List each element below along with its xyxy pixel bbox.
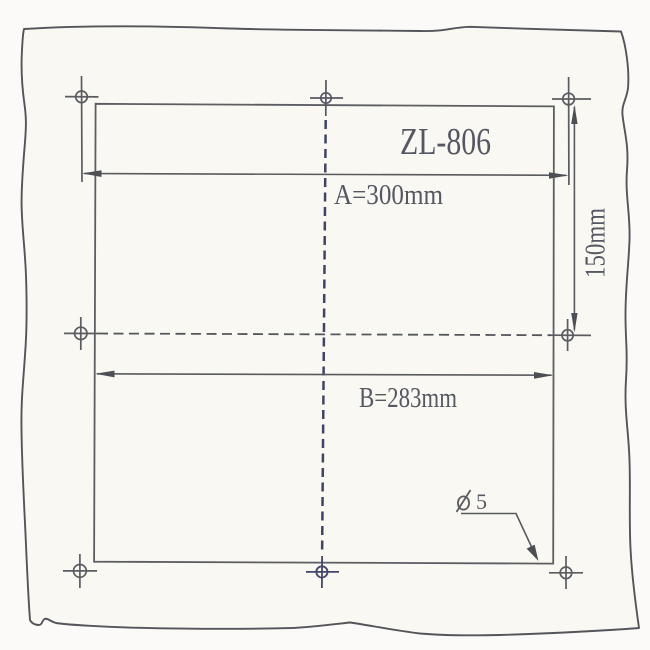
svg-text:ZL-806: ZL-806 <box>400 121 491 163</box>
svg-text:5: 5 <box>476 489 487 514</box>
svg-text:150mm: 150mm <box>581 208 612 278</box>
svg-text:A=300mm: A=300mm <box>334 180 443 211</box>
svg-text:B=283mm: B=283mm <box>359 383 457 414</box>
